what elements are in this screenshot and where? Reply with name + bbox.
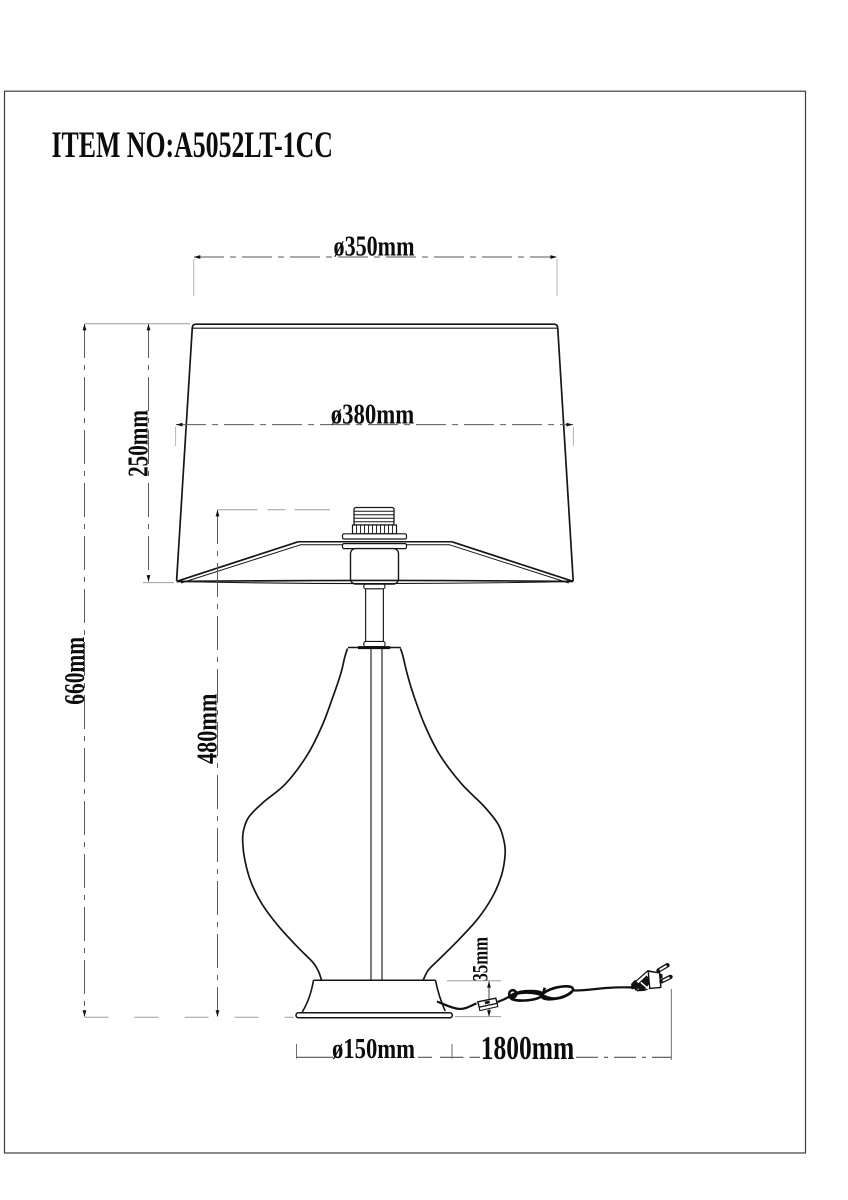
svg-text:ø380mm: ø380mm — [331, 398, 415, 430]
svg-text:ø350mm: ø350mm — [334, 230, 415, 262]
svg-text:ITEM NO:A5052LT-1CC: ITEM NO:A5052LT-1CC — [52, 125, 333, 166]
svg-text:ø150mm: ø150mm — [332, 1033, 415, 1065]
svg-text:1800mm: 1800mm — [481, 1028, 574, 1066]
svg-text:35mm: 35mm — [469, 937, 493, 982]
svg-text:250mm: 250mm — [124, 410, 155, 477]
svg-text:660mm: 660mm — [58, 637, 91, 705]
svg-text:480mm: 480mm — [191, 694, 223, 764]
